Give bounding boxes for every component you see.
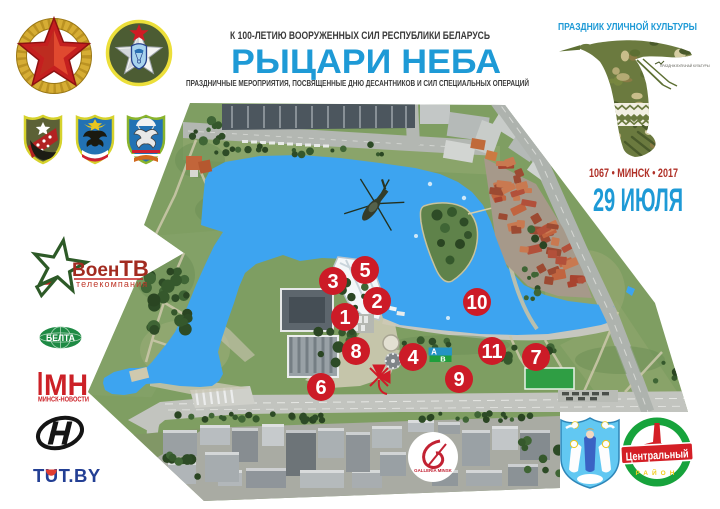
svg-text:7: 7 [530, 347, 541, 369]
svg-text:3: 3 [327, 271, 338, 293]
svg-text:5: 5 [359, 260, 370, 282]
svg-text:1067 • МИНСК • 2017: 1067 • МИНСК • 2017 [589, 168, 678, 180]
svg-text:11: 11 [482, 341, 503, 363]
svg-text:6: 6 [315, 377, 326, 399]
svg-text:К 100-ЛЕТИЮ ВООРУЖЕННЫХ СИЛ РЕ: К 100-ЛЕТИЮ ВООРУЖЕННЫХ СИЛ РЕСПУБЛИКИ Б… [230, 30, 490, 42]
svg-text:РЫЦАРИ НЕБА: РЫЦАРИ НЕБА [231, 43, 501, 81]
svg-text:ПРАЗДНIК ВУЛIЧНАЙ КУЛЬТУРЫ: ПРАЗДНIК ВУЛIЧНАЙ КУЛЬТУРЫ [660, 64, 710, 68]
svg-text:9: 9 [453, 369, 464, 391]
svg-text:ПРАЗДНИК УЛИЧНОЙ КУЛЬТУРЫ: ПРАЗДНИК УЛИЧНОЙ КУЛЬТУРЫ [558, 20, 697, 33]
svg-text:ПРАЗДНИЧНЫЕ МЕРОПРИЯТИЯ, ПОСВ: ПРАЗДНИЧНЫЕ МЕРОПРИЯТИЯ, ПОСВЯЩЕННЫЕ ДНЮ… [186, 77, 529, 88]
svg-text:A: A [431, 348, 437, 357]
svg-text:TUT.BY: TUT.BY [33, 465, 101, 486]
svg-text:1: 1 [339, 307, 350, 329]
svg-text:GALLERIA MINSK: GALLERIA MINSK [414, 468, 452, 473]
svg-text:4: 4 [407, 347, 419, 369]
svg-text:МИНСК-НОВОСТИ: МИНСК-НОВОСТИ [38, 395, 89, 404]
svg-text:БЕЛТА: БЕЛТА [46, 333, 75, 344]
svg-text:8: 8 [350, 341, 361, 363]
svg-text:B: B [440, 355, 446, 364]
svg-text:телекомпания: телекомпания [76, 279, 148, 289]
svg-text:ВоенТВ: ВоенТВ [72, 256, 149, 281]
svg-text:2: 2 [371, 291, 382, 313]
svg-text:29 ИЮЛЯ: 29 ИЮЛЯ [593, 182, 683, 218]
svg-text:10: 10 [467, 292, 488, 314]
svg-text:РАЙОН: РАЙОН [636, 468, 679, 477]
